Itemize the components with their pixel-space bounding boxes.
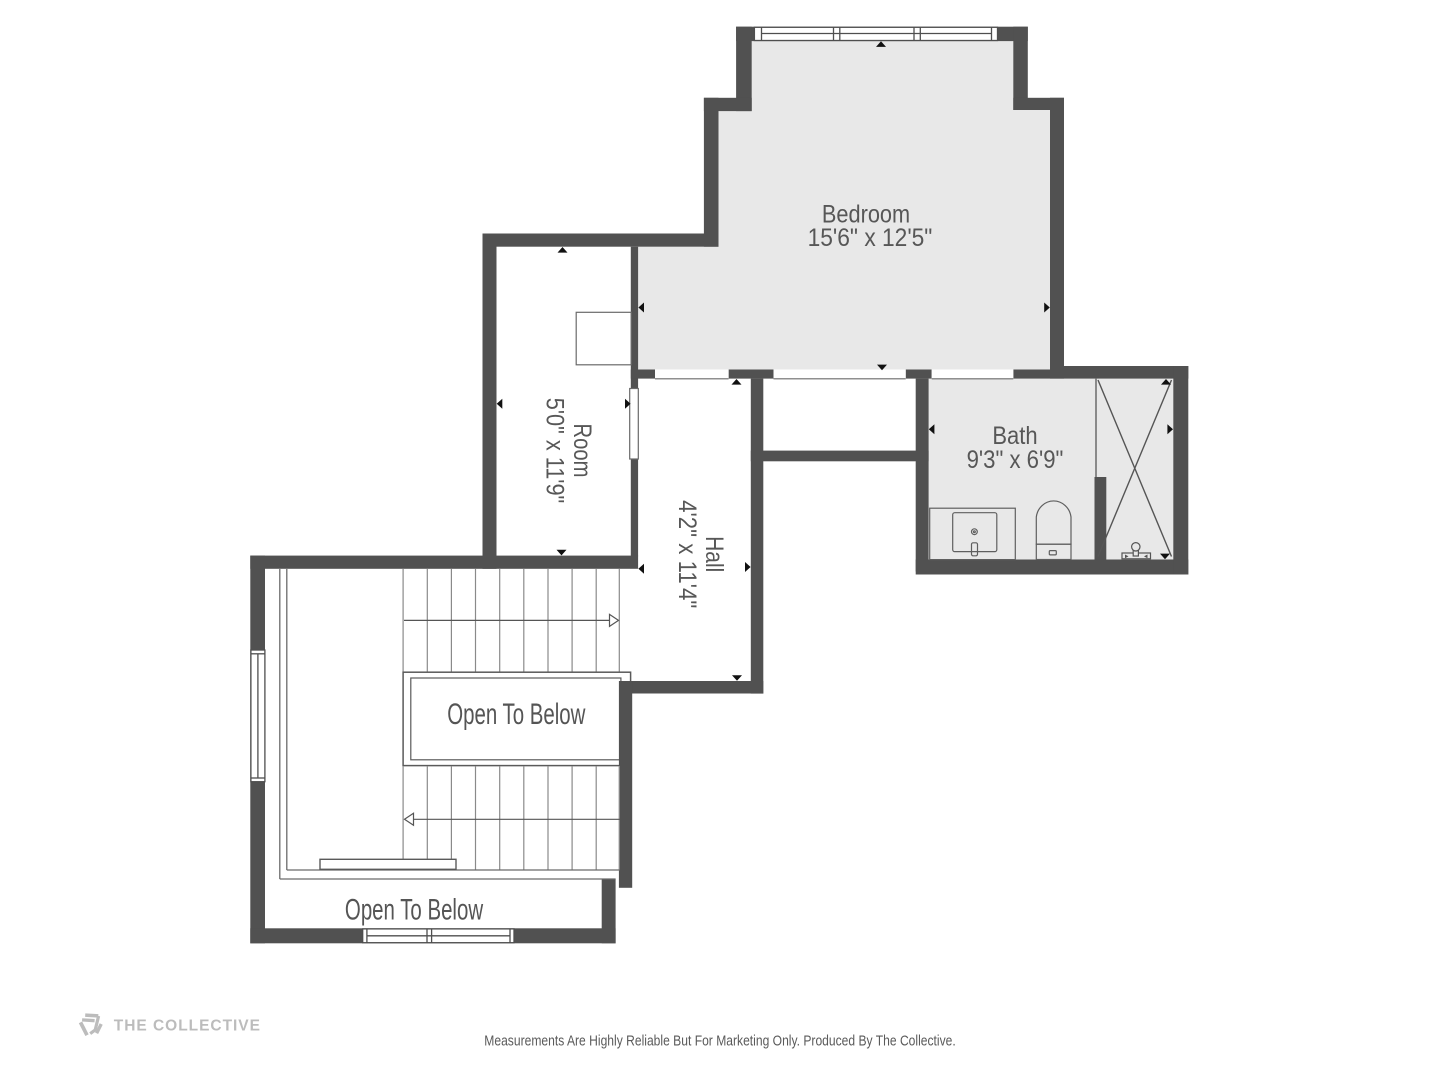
svg-text:Hall: Hall	[701, 536, 729, 572]
svg-text:4'2" x 11'4": 4'2" x 11'4"	[673, 500, 702, 608]
svg-text:Room: Room	[568, 424, 597, 478]
svg-text:THE COLLECTIVE: THE COLLECTIVE	[114, 1017, 261, 1034]
svg-text:15'6" x 12'5": 15'6" x 12'5"	[808, 224, 933, 252]
svg-text:Open To Below: Open To Below	[447, 698, 586, 730]
svg-text:Measurements Are Highly Reliab: Measurements Are Highly Reliable But For…	[484, 1033, 955, 1049]
svg-text:5'0" x 11'9": 5'0" x 11'9"	[541, 398, 569, 504]
svg-text:Open To Below: Open To Below	[345, 894, 484, 926]
svg-text:9'3" x 6'9": 9'3" x 6'9"	[967, 446, 1064, 475]
